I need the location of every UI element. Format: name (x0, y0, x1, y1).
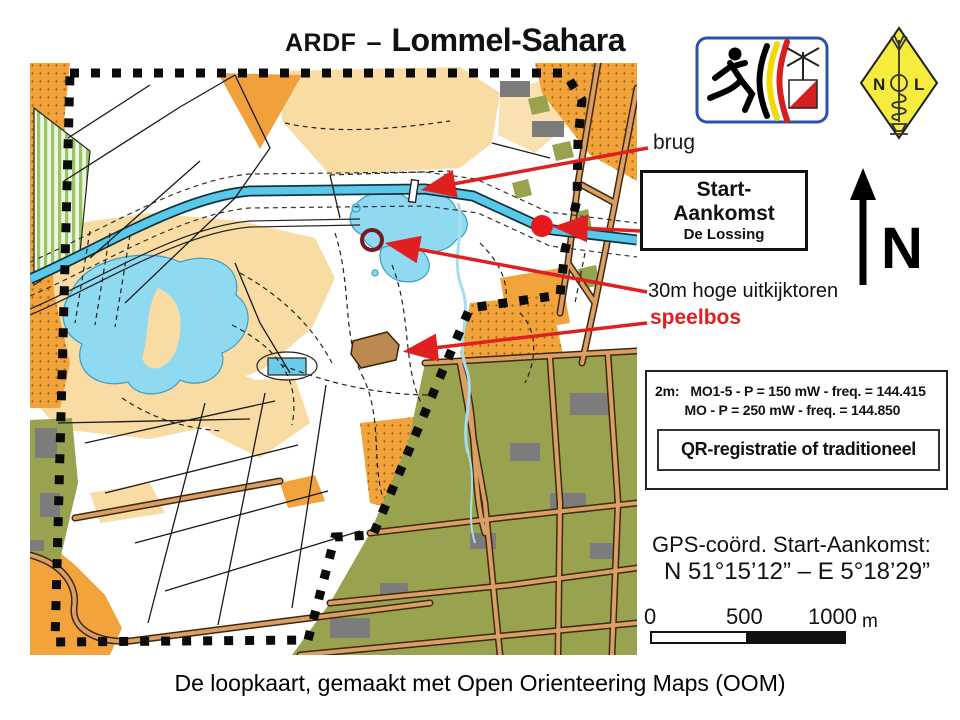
scale-bar-black-half (748, 631, 846, 644)
svg-text:L: L (914, 75, 924, 94)
uitkijktoren-label: 30m hoge uitkijktoren (648, 280, 838, 303)
start-box-line3: De Lossing (643, 226, 805, 244)
scale-bar (650, 631, 846, 644)
scale-tick-500: 500 (726, 604, 763, 630)
speelbos-label: speelbos (650, 306, 741, 330)
ardf-runner-logo-icon (695, 36, 830, 125)
start-box-line1: Start- (643, 178, 805, 202)
title-dash: – (366, 27, 381, 58)
scale-tick-1000: 1000 (808, 604, 857, 630)
page-title: ARDF – Lommel-Sahara (285, 22, 625, 59)
north-label: N (881, 216, 923, 281)
frequency-line-1: 2m: MO1-5 - P = 150 mW - freq. = 144.415 (655, 382, 940, 401)
scale-tick-0: 0 (644, 604, 656, 630)
start-dot-marker (531, 215, 553, 237)
svg-text:N: N (873, 75, 885, 94)
scale-bar-white-half (650, 631, 748, 644)
brug-label: brug (653, 131, 695, 155)
start-box-line2: Aankomst (643, 202, 805, 226)
north-arrow: N (845, 162, 945, 290)
orienteering-map (30, 63, 637, 655)
caption: De loopkaart, gemaakt met Open Orienteer… (0, 670, 960, 697)
frequency-line-2: MO - P = 250 mW - freq. = 144.850 (655, 401, 940, 420)
nol-diamond-logo-icon: N L (858, 26, 940, 140)
north-arrow-icon (850, 168, 876, 285)
start-aankomst-box: Start- Aankomst De Lossing (640, 170, 808, 251)
gps-label: GPS-coörd. Start-Aankomst: (652, 532, 931, 558)
frequency-info-box: 2m: MO1-5 - P = 150 mW - freq. = 144.415… (645, 370, 948, 490)
slide: ARDF – Lommel-Sahara (0, 0, 960, 720)
scale-unit: m (862, 611, 878, 633)
qr-registration-box: QR-registratie of traditioneel (657, 429, 940, 471)
qr-registration-label: QR-registratie of traditioneel (681, 439, 916, 459)
gps-coordinates: N 51°15’12” – E 5°18’29” (664, 558, 930, 586)
title-name: Lommel-Sahara (391, 22, 625, 59)
title-prefix: ARDF (285, 29, 356, 58)
